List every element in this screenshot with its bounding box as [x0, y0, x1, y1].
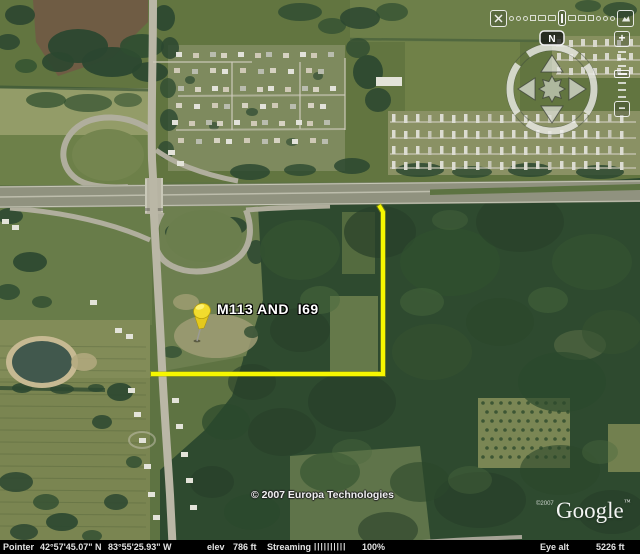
zoom-tick — [618, 89, 626, 91]
tilt-tick — [509, 16, 514, 21]
tilt-tick — [578, 15, 586, 21]
pan-left-arrow[interactable] — [518, 78, 535, 100]
tilt-reset-icon — [494, 14, 503, 23]
compass-control[interactable]: N — [496, 28, 608, 150]
look-joystick[interactable] — [539, 76, 565, 102]
eye-alt-label: Eye alt — [540, 542, 569, 552]
pointer-label: Pointer — [3, 542, 34, 552]
google-logo: Google™ — [556, 499, 631, 522]
status-bar: Pointer 42°57'45.07" N 83°55'25.93" W el… — [0, 540, 640, 554]
tilt-tick — [523, 16, 528, 21]
tilt-tick — [538, 15, 546, 21]
tilt-reset-button[interactable] — [490, 10, 507, 27]
imagery-attribution: © 2007 Europa Technologies — [251, 489, 394, 501]
zoom-out-button[interactable]: − — [614, 101, 630, 117]
tilt-tick — [530, 15, 536, 21]
zoom-slider-thumb[interactable] — [614, 70, 630, 78]
zoom-tick — [618, 58, 626, 60]
elevation-value: 786 ft — [233, 542, 257, 552]
streaming-label: Streaming — [267, 542, 311, 552]
zoom-in-button[interactable]: + — [614, 31, 630, 47]
pan-up-arrow[interactable] — [541, 55, 563, 72]
pan-right-arrow[interactable] — [569, 78, 586, 100]
tilt-tick — [596, 16, 601, 21]
tilt-slider[interactable] — [490, 8, 634, 28]
zoom-tick — [618, 96, 626, 98]
tilt-tick — [603, 16, 608, 21]
pointer-longitude: 83°55'25.93" W — [108, 542, 172, 552]
eye-alt-value: 5226 ft — [596, 542, 625, 552]
elevation-label: elev — [207, 542, 225, 552]
pointer-latitude: 42°57'45.07" N — [40, 542, 102, 552]
placemark-label[interactable]: M113 AND I69 — [217, 301, 319, 317]
tilt-max-button[interactable] — [617, 10, 634, 27]
streaming-percent: 100% — [362, 542, 385, 552]
tilt-slider-thumb[interactable] — [558, 10, 566, 26]
tilt-tick — [610, 16, 615, 21]
tilt-tick — [516, 16, 521, 21]
tilt-tick — [588, 15, 594, 21]
zoom-tick — [618, 82, 626, 84]
tilt-tick — [568, 15, 576, 21]
trademark-symbol: ™ — [624, 498, 631, 506]
google-earth-viewport[interactable]: M113 AND I69 © 2007 Europa Technologies … — [0, 0, 640, 554]
zoom-tick — [618, 51, 626, 53]
tilt-tick — [548, 15, 556, 21]
horizon-icon — [621, 14, 631, 23]
streaming-progress-bars: |||||||||| — [314, 542, 346, 551]
compass-north-label: N — [548, 34, 555, 45]
pan-down-arrow[interactable] — [541, 106, 563, 123]
zoom-tick — [618, 65, 626, 67]
zoom-slider[interactable]: + − — [613, 31, 631, 117]
copyright-watermark: ©2007 — [536, 501, 554, 507]
